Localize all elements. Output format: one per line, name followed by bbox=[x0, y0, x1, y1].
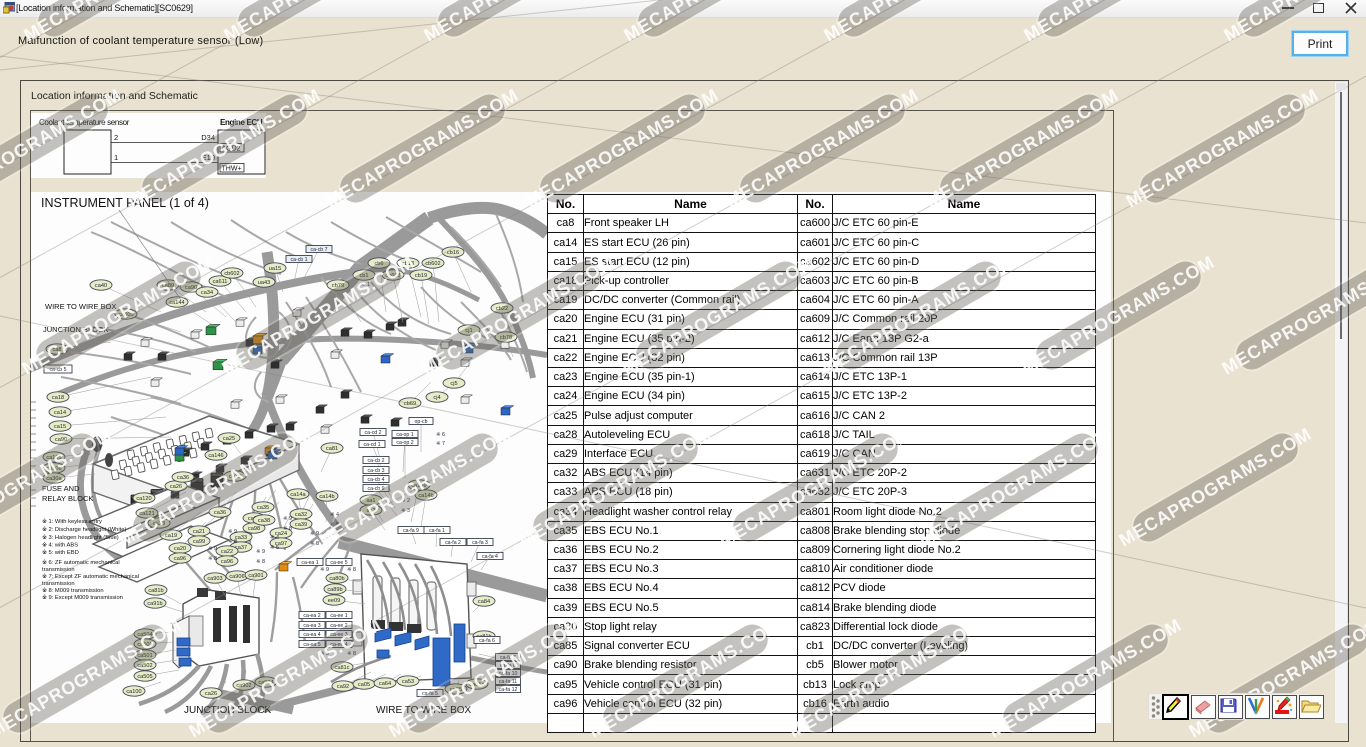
svg-text:ca18: ca18 bbox=[52, 395, 64, 401]
svg-text:※ 4: ※ 4 bbox=[270, 535, 279, 541]
svg-text:ca90: ca90 bbox=[185, 285, 197, 291]
svg-text:WIRE TO WIRE BOX: WIRE TO WIRE BOX bbox=[45, 302, 116, 311]
svg-text:※ 9: ※ 9 bbox=[320, 567, 329, 573]
svg-text:ca-ea 2: ca-ea 2 bbox=[303, 613, 320, 619]
svg-text:ca-ea 5: ca-ea 5 bbox=[303, 642, 320, 648]
svg-text:ca-cd 2: ca-cd 2 bbox=[364, 430, 381, 436]
svg-text:ca906: ca906 bbox=[229, 574, 244, 580]
svg-text:D34: D34 bbox=[201, 133, 215, 142]
svg-text:ca-cb 1: ca-cb 1 bbox=[290, 257, 307, 263]
svg-text:cb1: cb1 bbox=[359, 273, 368, 279]
svg-text:※ 8: M009 transmission: ※ 8: M009 transmission bbox=[42, 587, 104, 594]
svg-text:ca30a: ca30a bbox=[46, 476, 62, 482]
svg-text:※ 8: ※ 8 bbox=[256, 559, 265, 565]
svg-text:ca144: ca144 bbox=[169, 300, 184, 306]
svg-text:ca96: ca96 bbox=[174, 556, 186, 562]
svg-text:ee09: ee09 bbox=[328, 598, 340, 604]
svg-text:ca902: ca902 bbox=[236, 683, 251, 689]
svg-text:ca01a: ca01a bbox=[469, 682, 485, 688]
svg-text:ca149: ca149 bbox=[411, 483, 426, 489]
svg-text:※ 9: Except M009 transmission: ※ 9: Except M009 transmission bbox=[42, 594, 123, 601]
svg-text:ca32: ca32 bbox=[295, 512, 307, 518]
svg-text:Engine ECU: Engine ECU bbox=[220, 118, 263, 127]
svg-text:ca-fa 7: ca-fa 7 bbox=[500, 655, 516, 661]
svg-text:cb69: cb69 bbox=[404, 401, 416, 407]
svg-text:ca502: ca502 bbox=[137, 663, 152, 669]
svg-text:2: 2 bbox=[114, 133, 118, 142]
svg-text:cb16: cb16 bbox=[447, 250, 459, 256]
svg-text:ca20: ca20 bbox=[174, 546, 186, 552]
svg-text:cb6: cb6 bbox=[374, 261, 383, 267]
svg-text:※ 9: ※ 9 bbox=[256, 549, 265, 555]
svg-text:transmission: transmission bbox=[42, 567, 75, 573]
svg-text:ca-fa 2: ca-fa 2 bbox=[445, 540, 461, 546]
svg-text:ca89: ca89 bbox=[162, 283, 174, 289]
svg-text:※ 9: ※ 9 bbox=[320, 651, 329, 657]
svg-text:ca81b: ca81b bbox=[148, 588, 163, 594]
svg-text:cb603: cb603 bbox=[385, 273, 400, 279]
svg-text:ce65: ce65 bbox=[450, 687, 462, 693]
svg-text:cj4: cj4 bbox=[433, 395, 440, 401]
svg-text:ua43: ua43 bbox=[258, 280, 270, 286]
svg-text:※ 2: Discharge headlight (Whit: ※ 2: Discharge headlight (White) bbox=[42, 526, 127, 533]
svg-text:cb602: cb602 bbox=[224, 271, 239, 277]
svg-text:※ 7: Except ZF automatic mecha: ※ 7: Except ZF automatic mechanical bbox=[42, 573, 139, 580]
svg-text:1: 1 bbox=[114, 153, 118, 162]
svg-text:ca28: ca28 bbox=[153, 521, 165, 527]
svg-text:※ 5: ※ 5 bbox=[270, 545, 279, 551]
svg-text:cb22: cb22 bbox=[496, 306, 508, 312]
svg-text:ca-fa 9: ca-fa 9 bbox=[403, 528, 419, 534]
svg-text:ca106: ca106 bbox=[46, 466, 61, 472]
svg-text:ca505: ca505 bbox=[137, 674, 152, 680]
svg-text:※ 6: ZF automatic mechanical: ※ 6: ZF automatic mechanical bbox=[42, 559, 120, 566]
svg-text:ca-ee 3: ca-ee 3 bbox=[330, 632, 347, 638]
svg-text:ca901: ca901 bbox=[248, 573, 263, 579]
svg-text:cb19: cb19 bbox=[415, 273, 427, 279]
svg-text:sa2: sa2 bbox=[366, 508, 375, 514]
svg-text:ca-fa 6: ca-fa 6 bbox=[479, 638, 495, 644]
svg-text:※ 4: with ABS: ※ 4: with ABS bbox=[42, 542, 78, 549]
svg-text:ca-fa 1: ca-fa 1 bbox=[429, 528, 445, 534]
svg-text:ca8: ca8 bbox=[52, 347, 61, 353]
svg-text:ca05: ca05 bbox=[358, 682, 370, 688]
svg-text:Coolant temperature sensor: Coolant temperature sensor bbox=[39, 118, 130, 127]
svg-text:ca-fa 8: ca-fa 8 bbox=[500, 663, 516, 669]
svg-text:cb79: cb79 bbox=[332, 283, 344, 289]
svg-text:ca26: ca26 bbox=[170, 484, 182, 490]
svg-text:RELAY BLOCK: RELAY BLOCK bbox=[42, 494, 93, 503]
svg-text:※ 1: With keyless entry: ※ 1: With keyless entry bbox=[42, 518, 102, 525]
svg-text:ca14: ca14 bbox=[54, 410, 66, 416]
svg-text:ca53: ca53 bbox=[402, 679, 414, 685]
svg-text:ca81c: ca81c bbox=[335, 665, 350, 671]
svg-text:cb78: cb78 bbox=[500, 335, 512, 341]
svg-text:ca36: ca36 bbox=[214, 510, 226, 516]
svg-text:ca14b: ca14b bbox=[418, 493, 433, 499]
svg-text:ca121: ca121 bbox=[139, 511, 154, 517]
svg-text:AGD2: AGD2 bbox=[222, 146, 241, 153]
svg-text:ca80b: ca80b bbox=[329, 576, 344, 582]
svg-text:ca15: ca15 bbox=[54, 424, 66, 430]
svg-text:cj1: cj1 bbox=[465, 328, 472, 334]
svg-text:ca-ea 4: ca-ea 4 bbox=[303, 632, 320, 638]
svg-text:ca100: ca100 bbox=[126, 689, 141, 695]
svg-text:ca38: ca38 bbox=[258, 518, 270, 524]
svg-text:cj5: cj5 bbox=[450, 381, 457, 387]
svg-text:ca503: ca503 bbox=[137, 642, 152, 648]
svg-text:op-cb: op-cb bbox=[415, 419, 428, 425]
svg-text:ca96: ca96 bbox=[221, 559, 233, 565]
svg-text:ca-cb 9: ca-cb 9 bbox=[367, 486, 384, 492]
svg-text:ca92: ca92 bbox=[337, 684, 349, 690]
svg-text:ca30: ca30 bbox=[229, 474, 241, 480]
svg-text:ca-fa 12: ca-fa 12 bbox=[499, 687, 518, 693]
svg-text:※ 6: ※ 6 bbox=[436, 432, 445, 438]
svg-text:sa1: sa1 bbox=[366, 498, 375, 504]
svg-text:ca504: ca504 bbox=[137, 632, 152, 638]
svg-text:※ 3: ※ 3 bbox=[401, 508, 410, 514]
svg-text:ca904: ca904 bbox=[258, 680, 273, 686]
svg-text:THW+: THW+ bbox=[222, 166, 242, 173]
svg-text:※ 9: ※ 9 bbox=[208, 546, 217, 552]
svg-text:ca89b: ca89b bbox=[327, 587, 342, 593]
svg-text:※ 3: Halogen headlight (Blue): ※ 3: Halogen headlight (Blue) bbox=[42, 534, 119, 541]
svg-text:※ 1: ※ 1 bbox=[361, 282, 370, 288]
svg-text:ca22: ca22 bbox=[221, 549, 233, 555]
svg-text:ca98: ca98 bbox=[248, 526, 260, 532]
svg-text:ca-ee 5: ca-ee 5 bbox=[330, 560, 347, 566]
svg-text:E19: E19 bbox=[202, 153, 215, 162]
svg-text:INSTRUMENT PANEL (1 of 4): INSTRUMENT PANEL (1 of 4) bbox=[41, 196, 209, 210]
svg-text:FUSE AND: FUSE AND bbox=[42, 484, 80, 493]
svg-text:ca501: ca501 bbox=[137, 653, 152, 659]
svg-text:※ 8: ※ 8 bbox=[347, 651, 356, 657]
svg-text:※ 9: ※ 9 bbox=[310, 531, 319, 537]
svg-text:ca611: ca611 bbox=[213, 279, 228, 285]
svg-text:cb13: cb13 bbox=[402, 261, 414, 267]
svg-text:ua15: ua15 bbox=[269, 266, 281, 272]
svg-text:ca-cb 4: ca-cb 4 bbox=[367, 477, 384, 483]
svg-text:※ 5: with EBD: ※ 5: with EBD bbox=[42, 549, 79, 556]
svg-text:ca90: ca90 bbox=[55, 437, 67, 443]
svg-text:ca14a: ca14a bbox=[290, 492, 306, 498]
svg-text:ca-cb 7: ca-cb 7 bbox=[310, 247, 327, 253]
svg-text:ca-fa 3: ca-fa 3 bbox=[472, 540, 488, 546]
svg-text:transmission: transmission bbox=[42, 581, 75, 587]
svg-text:ca-ee 1: ca-ee 1 bbox=[330, 613, 347, 619]
svg-text:ca-ea 1: ca-ea 1 bbox=[301, 560, 318, 566]
svg-text:ca605: ca605 bbox=[118, 312, 133, 318]
svg-text:ca-ee 2: ca-ee 2 bbox=[330, 623, 347, 629]
svg-text:ca-cb 5: ca-cb 5 bbox=[49, 367, 66, 373]
svg-text:ca903: ca903 bbox=[207, 576, 222, 582]
svg-text:※ 8: ※ 8 bbox=[347, 567, 356, 573]
svg-text:※ 7: ※ 7 bbox=[436, 441, 445, 447]
svg-text:ca25: ca25 bbox=[223, 436, 235, 442]
svg-text:※ 8: ※ 8 bbox=[283, 526, 292, 532]
svg-text:※ 9: ※ 9 bbox=[228, 529, 237, 535]
svg-text:WIRE TO WIRE BOX: WIRE TO WIRE BOX bbox=[376, 705, 472, 716]
svg-text:cb602: cb602 bbox=[425, 261, 440, 267]
svg-text:ca-fa 4: ca-fa 4 bbox=[482, 554, 498, 560]
svg-text:ca99: ca99 bbox=[193, 539, 205, 545]
svg-text:ca105: ca105 bbox=[46, 455, 61, 461]
svg-text:※ 5: ※ 5 bbox=[330, 522, 339, 528]
svg-text:※ 4: ※ 4 bbox=[330, 512, 339, 518]
svg-text:ca40: ca40 bbox=[95, 283, 107, 289]
svg-text:ca84: ca84 bbox=[478, 599, 490, 605]
svg-text:※ 9: ※ 9 bbox=[283, 516, 292, 522]
svg-text:※ 8: ※ 8 bbox=[228, 539, 237, 545]
svg-text:ca35: ca35 bbox=[257, 505, 269, 511]
svg-text:ca91b: ca91b bbox=[147, 601, 162, 607]
svg-text:ca19: ca19 bbox=[165, 533, 177, 539]
svg-text:ca-fa 10: ca-fa 10 bbox=[499, 671, 518, 677]
svg-text:ca34: ca34 bbox=[201, 290, 213, 296]
svg-text:JUNCTION BLOCK: JUNCTION BLOCK bbox=[43, 325, 108, 334]
svg-text:ca-op 1: ca-op 1 bbox=[396, 432, 413, 438]
svg-text:JUNCTION BLOCK: JUNCTION BLOCK bbox=[184, 705, 272, 716]
svg-text:※ 8: ※ 8 bbox=[310, 541, 319, 547]
svg-text:ca21: ca21 bbox=[193, 529, 205, 535]
svg-text:ca-cb 2: ca-cb 2 bbox=[367, 458, 384, 464]
svg-text:ca39: ca39 bbox=[295, 522, 307, 528]
svg-text:ca-ea 3: ca-ea 3 bbox=[303, 623, 320, 629]
svg-text:ca-op 2: ca-op 2 bbox=[396, 440, 413, 446]
svg-text:ca-cb 3: ca-cb 3 bbox=[367, 468, 384, 474]
svg-text:ca-fa 5: ca-fa 5 bbox=[422, 691, 438, 697]
svg-text:ca146: ca146 bbox=[208, 453, 223, 459]
svg-text:※ 8: ※ 8 bbox=[208, 556, 217, 562]
svg-text:ca-fa 11: ca-fa 11 bbox=[499, 679, 517, 685]
svg-text:ca81: ca81 bbox=[326, 446, 338, 452]
svg-text:ca64: ca64 bbox=[379, 681, 391, 687]
svg-text:ca36: ca36 bbox=[177, 475, 189, 481]
svg-text:ca120: ca120 bbox=[136, 496, 151, 502]
svg-text:ca-cd 1: ca-cd 1 bbox=[363, 442, 380, 448]
svg-text:ca-ee 4: ca-ee 4 bbox=[330, 642, 347, 648]
svg-text:ca26: ca26 bbox=[205, 691, 217, 697]
svg-text:ca14b: ca14b bbox=[319, 494, 334, 500]
svg-text:※ 2: ※ 2 bbox=[401, 498, 410, 504]
